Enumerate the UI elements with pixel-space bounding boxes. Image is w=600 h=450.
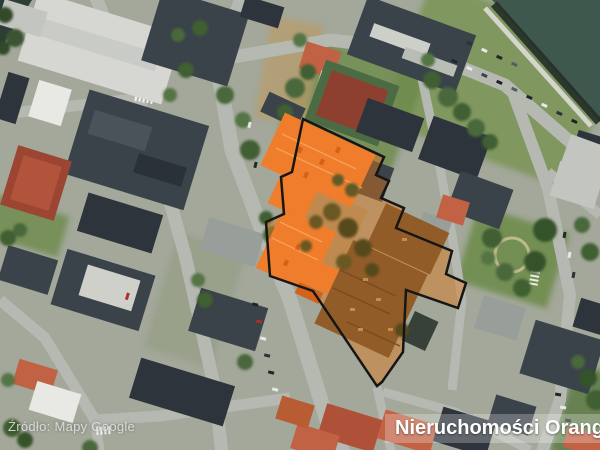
satellite-image — [0, 0, 600, 450]
property-listing-satellite-map: Źródło: Mapy Google Nieruchomości Orange — [0, 0, 600, 450]
brand-watermark-bar: Nieruchomości Orange — [385, 414, 600, 443]
map-source-attribution: Źródło: Mapy Google — [8, 419, 135, 434]
brand-watermark-text: Nieruchomości Orange — [395, 417, 600, 440]
